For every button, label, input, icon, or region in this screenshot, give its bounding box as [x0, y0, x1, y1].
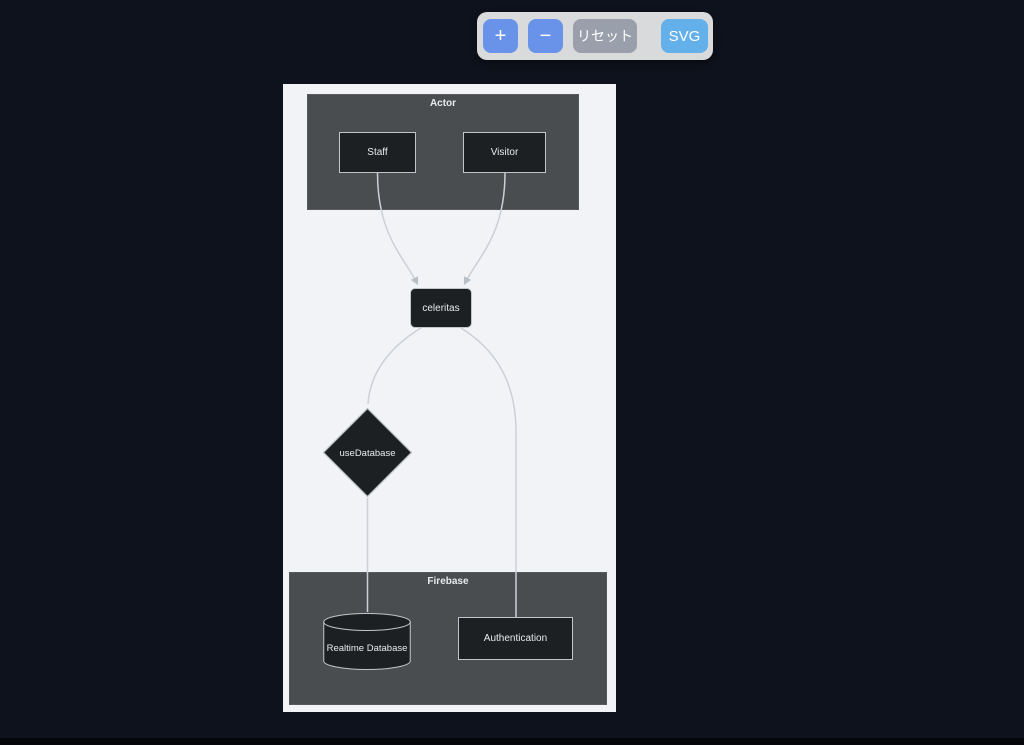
zoom-out-button[interactable]: − — [528, 19, 563, 53]
zoom-toolbar: + − リセット SVG — [477, 12, 713, 60]
node-staff[interactable]: Staff — [339, 132, 416, 173]
node-usedatabase-label: useDatabase — [323, 408, 412, 498]
edge-staff-celeritas — [378, 173, 418, 283]
reset-button[interactable]: リセット — [573, 19, 637, 53]
edge-celeritas-authentication — [461, 328, 516, 617]
node-usedatabase[interactable]: useDatabase — [323, 408, 412, 498]
node-visitor[interactable]: Visitor — [463, 132, 546, 173]
diagram-canvas[interactable]: Actor Firebase Staff Visitor celeritas u… — [283, 84, 616, 712]
edge-celeritas-usedatabase — [368, 328, 421, 404]
zoom-in-button[interactable]: + — [483, 19, 518, 53]
node-staff-label: Staff — [367, 147, 387, 158]
node-celeritas[interactable]: celeritas — [410, 288, 472, 328]
edge-visitor-celeritas — [465, 173, 505, 283]
node-celeritas-label: celeritas — [422, 303, 459, 314]
node-visitor-label: Visitor — [491, 147, 519, 158]
node-authentication[interactable]: Authentication — [458, 617, 573, 660]
node-realtime-database-label: Realtime Database — [323, 612, 411, 671]
bottom-bar — [0, 738, 1024, 745]
node-authentication-label: Authentication — [484, 633, 547, 644]
export-svg-button[interactable]: SVG — [661, 19, 708, 53]
